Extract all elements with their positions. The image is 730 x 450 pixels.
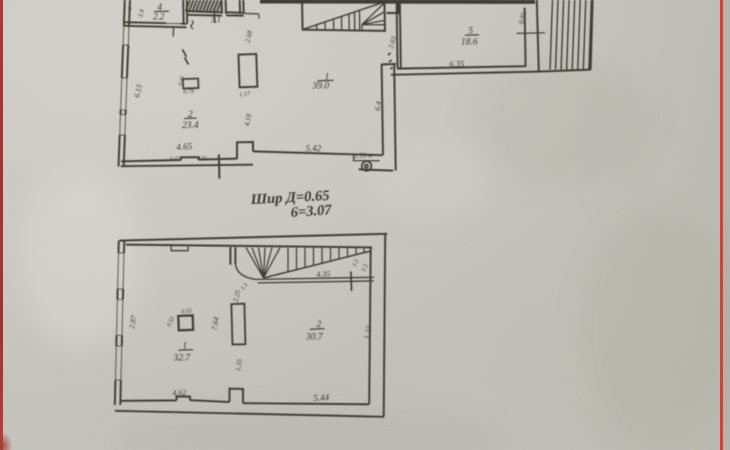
svg-text:32.7: 32.7: [173, 354, 192, 364]
svg-text:6.4: 6.4: [373, 100, 384, 111]
svg-text:5: 5: [469, 26, 474, 36]
svg-text:5.42: 5.42: [305, 143, 321, 153]
svg-text:6=3.07: 6=3.07: [290, 202, 333, 221]
svg-text:2.2: 2.2: [153, 12, 165, 22]
svg-text:4: 4: [158, 2, 163, 12]
svg-text:0.55: 0.55: [181, 308, 192, 315]
svg-text:3.1: 3.1: [210, 15, 222, 25]
svg-text:0.79: 0.79: [183, 89, 194, 96]
svg-text:18.6: 18.6: [461, 38, 478, 48]
svg-text:4.35: 4.35: [316, 269, 330, 279]
svg-text:5.44: 5.44: [313, 392, 330, 403]
svg-text:4.65: 4.65: [176, 141, 193, 152]
svg-text:0.45: 0.45: [170, 155, 180, 162]
svg-text:6.35: 6.35: [449, 58, 464, 69]
svg-text:4.62: 4.62: [172, 388, 186, 398]
svg-text:1.53 м: 1.53 м: [354, 151, 373, 160]
svg-text:0.91: 0.91: [197, 156, 207, 162]
svg-text:1.17: 1.17: [239, 91, 251, 98]
svg-text:23.4: 23.4: [182, 121, 199, 131]
svg-text:39.0: 39.0: [312, 82, 330, 92]
svg-text:30.7: 30.7: [305, 333, 324, 343]
